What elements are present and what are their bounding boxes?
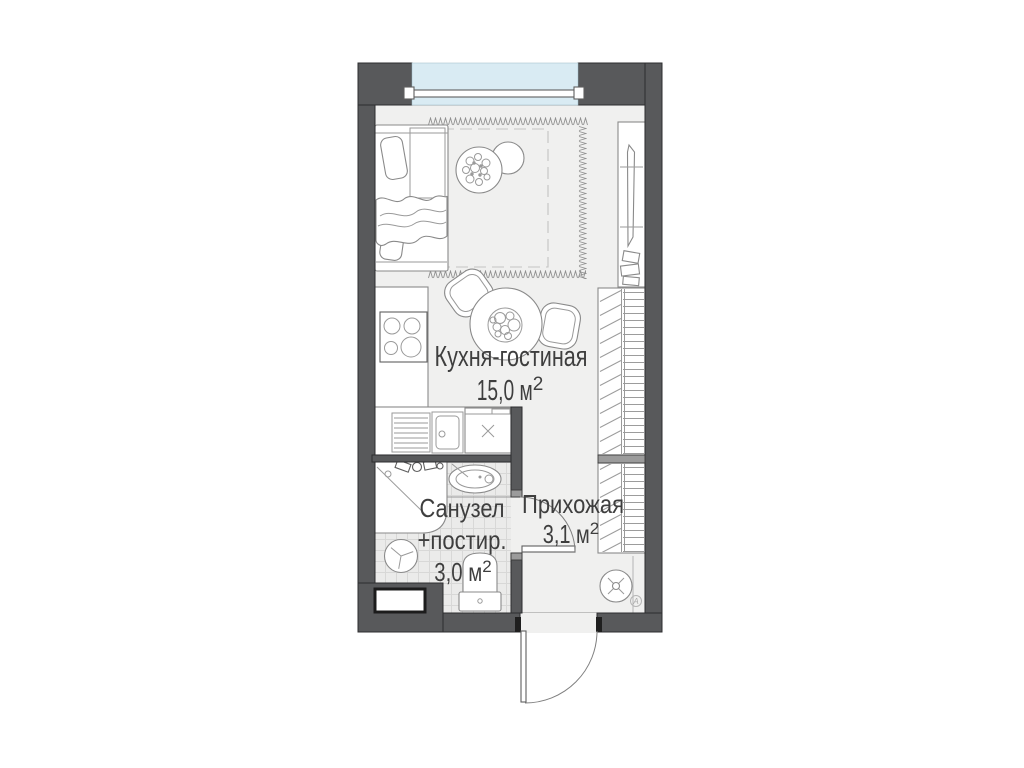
hallway-label: Прихожая <box>522 489 624 519</box>
dishwasher-icon <box>465 408 511 453</box>
floor-plan-page: А Кухня-гостиная 15,0 <box>0 0 1024 768</box>
window-glass <box>412 63 578 105</box>
wall-bathroom-top <box>372 455 522 462</box>
curtain-right <box>578 126 587 279</box>
entrance-door-leaf <box>521 631 526 702</box>
entrance-jamb-right <box>596 617 602 632</box>
blanket <box>376 196 447 246</box>
window <box>404 63 584 105</box>
curtain-top <box>428 117 588 126</box>
bed <box>375 125 448 271</box>
wall-bathroom-upper <box>511 407 522 497</box>
wall-bottom-right <box>597 613 662 632</box>
door-jamb <box>511 490 522 497</box>
door-jamb <box>511 553 522 560</box>
wall-bathroom-lower <box>511 553 522 613</box>
cooktop-icon <box>380 312 427 362</box>
wall-right <box>645 63 662 632</box>
kitchen-living-label: Кухня-гостиная <box>435 341 588 373</box>
floor-plan: А Кухня-гостиная 15,0 <box>0 0 1024 768</box>
outlet-marker-letter: А <box>632 597 638 606</box>
tv-icon <box>628 145 635 246</box>
entrance-door <box>521 631 597 703</box>
bathroom-label: Санузел <box>420 493 505 523</box>
curtain-bottom <box>428 270 586 279</box>
washing-machine-icon <box>385 540 418 573</box>
wall-stub-right <box>598 455 645 463</box>
window-frame <box>406 90 578 97</box>
tv-unit <box>618 122 645 287</box>
entrance-door-swing <box>525 631 597 703</box>
entrance-threshold <box>520 613 597 633</box>
bathroom-label-2: +постир. <box>418 525 507 555</box>
wardrobe-upper <box>598 288 645 455</box>
dryer-icon <box>600 570 632 602</box>
vent-shaft <box>375 589 425 612</box>
wall-left <box>358 63 375 632</box>
entrance-jamb-left <box>515 617 521 632</box>
